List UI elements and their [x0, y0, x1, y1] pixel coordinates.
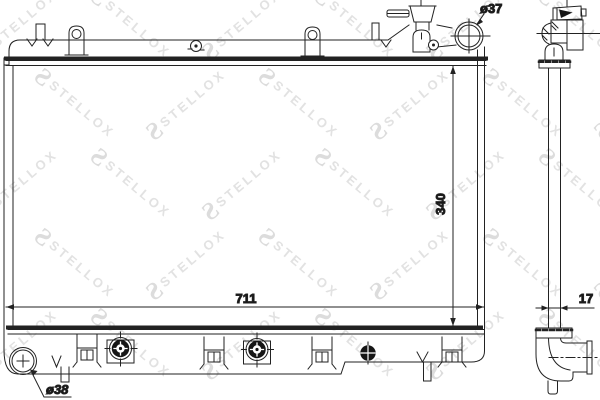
front-view-radiator: [4, 0, 490, 382]
outlet-diameter-label: ø38: [46, 382, 69, 397]
top-bracket-right: [301, 27, 324, 56]
top-mount-tab: [27, 24, 53, 46]
label-filler-diameter: ø37: [477, 1, 503, 26]
drain-plug: [361, 342, 375, 364]
shell-outline: [4, 47, 485, 374]
side-column: [549, 68, 561, 328]
side-view-radiator: [536, 0, 600, 394]
mount-bracket-1: [73, 335, 101, 367]
core-top-crimp-band: [6, 59, 486, 66]
upper-collar: [539, 60, 570, 68]
rubber-mount-1: [105, 332, 137, 366]
dimension-depth-17: 17: [536, 291, 594, 311]
radiator-technical-drawing: SSTELLOXSSTELLOXSSTELLOXSSTELLOXSSTELLOX…: [0, 0, 600, 400]
cap-housing: [551, 20, 583, 50]
dimension-width-711: 711: [6, 291, 484, 310]
mount-bracket-4: [438, 337, 466, 367]
filler-diameter-label: ø37: [480, 1, 502, 16]
filler-neck: [387, 0, 439, 52]
lower-collar: [536, 328, 572, 338]
radiator-diagram-svg: 711 340 17 ø37 ø38: [0, 0, 600, 400]
top-grommet: [188, 41, 204, 52]
bottom-notch-tab-right: [417, 352, 431, 381]
elbow-tab: [548, 381, 558, 394]
dimension-height-340: 340: [433, 66, 456, 326]
outlet-elbow: [536, 338, 600, 394]
core-bottom-crimp-band: [8, 328, 484, 335]
rubber-mount-2: [242, 333, 274, 367]
height-dimension-label: 340: [433, 193, 448, 215]
cap-arrow: [559, 10, 573, 19]
width-dimension-label: 711: [236, 291, 257, 306]
bottom-notch-tab-left: [52, 356, 69, 382]
depth-dimension-label: 17: [579, 291, 593, 306]
mount-bracket-3: [308, 337, 336, 369]
mount-bracket-2: [200, 337, 228, 369]
neck-dome: [545, 44, 563, 60]
top-tab-right: [372, 23, 391, 47]
